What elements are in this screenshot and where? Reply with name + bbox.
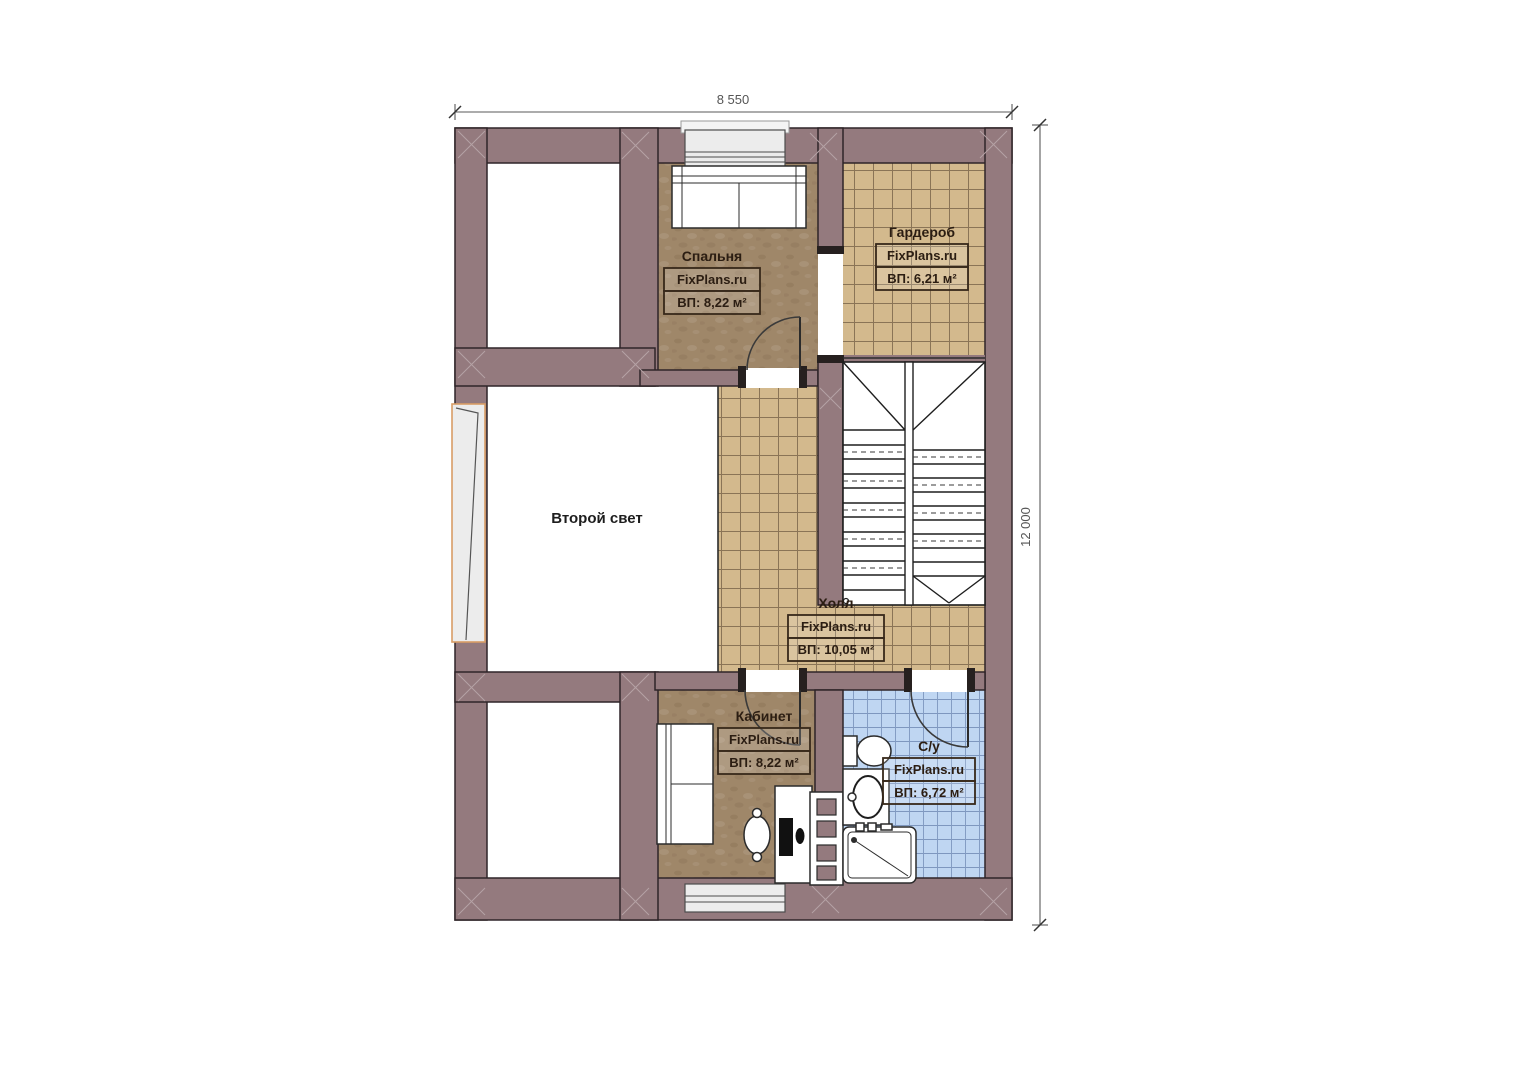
jamb xyxy=(904,668,912,692)
area-office: ВП: 8,22 м² xyxy=(729,755,799,770)
staircase xyxy=(843,362,985,605)
watermark-bathroom: FixPlans.ru xyxy=(894,762,964,777)
window-bottom xyxy=(685,884,785,912)
room-name-void: Второй свет xyxy=(551,510,643,527)
area-wardrobe: ВП: 6,21 м² xyxy=(887,271,957,286)
stair-center-divider xyxy=(905,362,913,605)
watermark-office: FixPlans.ru xyxy=(729,732,799,747)
label-wardrobe: Гардероб FixPlans.ru ВП: 6,21 м² xyxy=(876,224,968,290)
jamb xyxy=(817,355,844,363)
jamb xyxy=(967,668,975,692)
floor-plan-canvas: Спальня FixPlans.ru ВП: 8,22 м² Гардероб… xyxy=(0,0,1528,1080)
window-left xyxy=(452,404,485,642)
room-name-office: Кабинет xyxy=(736,708,793,724)
opening-wardrobe xyxy=(818,253,843,358)
desk xyxy=(775,786,812,883)
watermark-hall: FixPlans.ru xyxy=(801,619,871,634)
jamb xyxy=(738,366,746,388)
jamb xyxy=(738,668,746,692)
opening-bathroom-door xyxy=(911,670,968,692)
sofa xyxy=(672,166,806,228)
dimension-width-label: 8 550 xyxy=(717,92,750,107)
dimension-height-label: 12 000 xyxy=(1018,507,1033,547)
watermark-wardrobe: FixPlans.ru xyxy=(887,248,957,263)
watermark-bedroom: FixPlans.ru xyxy=(677,272,747,287)
wall-office-bathroom xyxy=(815,690,843,800)
room-name-wardrobe: Гардероб xyxy=(889,224,956,240)
dimension-right: 12 000 xyxy=(1018,119,1048,931)
room-name-bathroom: С/у xyxy=(918,738,940,754)
shower xyxy=(843,823,916,883)
opening-bedroom-door xyxy=(745,368,800,388)
closet xyxy=(657,724,713,844)
jamb xyxy=(799,668,807,692)
wall-right xyxy=(985,128,1012,920)
area-hall: ВП: 10,05 м² xyxy=(798,642,875,657)
wall-divider-bottom-left xyxy=(620,672,658,920)
desk-accessory xyxy=(796,828,805,844)
window-top-dormer xyxy=(681,121,789,168)
area-bedroom: ВП: 8,22 м² xyxy=(677,295,747,310)
wall-bedroom-wardrobe xyxy=(818,128,843,253)
wall-stairwell-left xyxy=(818,358,843,605)
area-bathroom: ВП: 6,72 м² xyxy=(894,785,964,800)
room-name-hall: Холл xyxy=(818,595,853,611)
sink-vanity xyxy=(843,769,889,825)
monitor xyxy=(779,818,793,856)
opening-office-door xyxy=(745,670,800,692)
dimension-top: 8 550 xyxy=(449,92,1018,120)
jamb xyxy=(817,246,844,254)
floor-plan-drawing: Спальня FixPlans.ru ВП: 8,22 м² Гардероб… xyxy=(0,0,1528,1080)
drawer-unit xyxy=(810,792,843,885)
room-name-bedroom: Спальня xyxy=(682,248,742,264)
label-void: Второй свет xyxy=(551,510,643,527)
